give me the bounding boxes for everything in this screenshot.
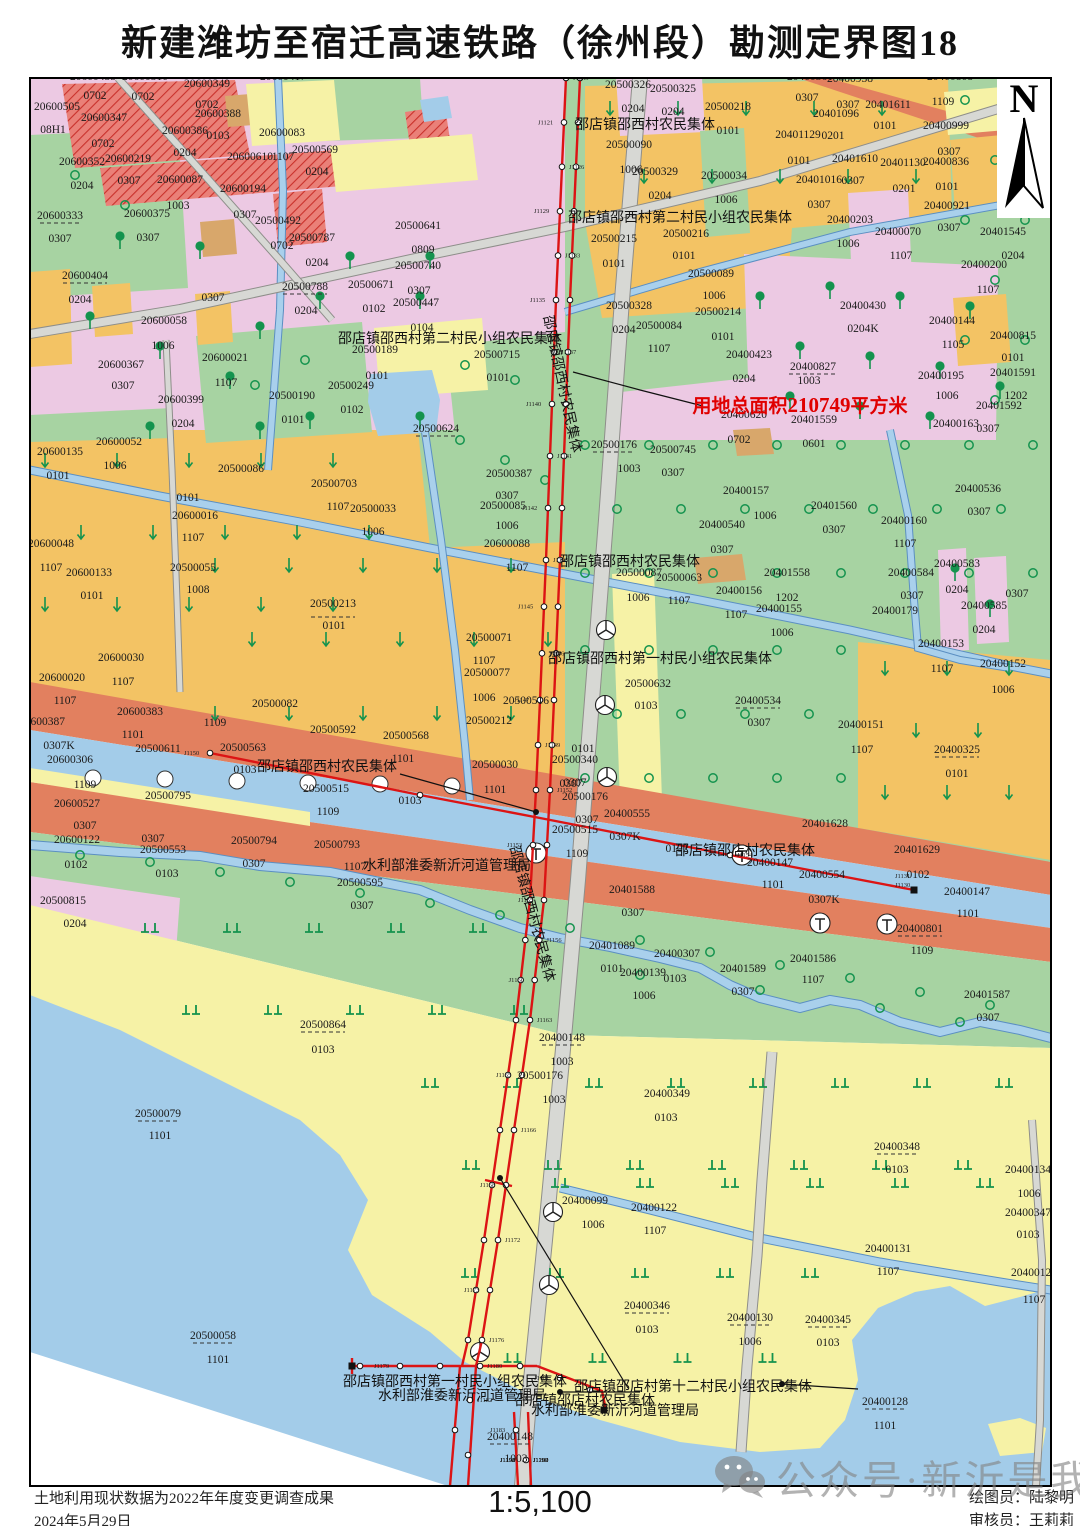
parcel-label: 0102 bbox=[907, 869, 930, 881]
parcel-label: 0204 bbox=[649, 190, 672, 202]
parcel-label: 0103 bbox=[1017, 1229, 1040, 1241]
survey-point-label: J1160 bbox=[509, 977, 524, 984]
parcel-label: 20600030 bbox=[98, 652, 144, 664]
parcel-label: 0103 bbox=[207, 130, 230, 142]
parcel-label: 0204 bbox=[946, 584, 969, 596]
parcel-label: 20600088 bbox=[484, 538, 530, 550]
parcel-label: 20500034 bbox=[701, 170, 747, 182]
parcel-label: 1109 bbox=[911, 945, 934, 957]
parcel-label: 0204 bbox=[613, 324, 636, 336]
parcel-label: 20500085 bbox=[480, 500, 526, 512]
survey-point bbox=[465, 1337, 471, 1343]
parcel-label: 1107 bbox=[802, 974, 825, 986]
survey-point bbox=[535, 742, 541, 748]
parcel-label: 20400836 bbox=[923, 156, 969, 168]
survey-point-label: J1140 bbox=[526, 401, 541, 408]
parcel-label: 0702 bbox=[84, 90, 107, 102]
parcel-label: 0307 bbox=[662, 467, 685, 479]
parcel-label: 1109 bbox=[204, 717, 227, 729]
parcel-label: 20600058 bbox=[141, 315, 187, 327]
parcel-label: 0307 bbox=[202, 292, 225, 304]
parcel-label: 20400585 bbox=[961, 600, 1007, 612]
parcel-label: 0204 bbox=[622, 103, 645, 115]
parcel-label: 0307 bbox=[808, 199, 831, 211]
survey-point bbox=[207, 750, 213, 756]
survey-point bbox=[487, 1287, 493, 1293]
parcel-label: 0204 bbox=[306, 257, 329, 269]
survey-point bbox=[437, 1363, 443, 1369]
parcel-label: 20600194 bbox=[220, 183, 266, 195]
parcel-label: 0307 bbox=[137, 232, 160, 244]
survey-point bbox=[539, 651, 545, 657]
parcel-label: 0307 bbox=[823, 524, 846, 536]
parcel-label: 20400195 bbox=[918, 370, 964, 382]
parcel-label: 20500249 bbox=[328, 380, 374, 392]
survey-point bbox=[545, 505, 551, 511]
village-collective-label: 邵店镇邵西村农民集体 bbox=[560, 553, 700, 570]
parcel-label: 20600404 bbox=[62, 270, 108, 282]
parcel-label: 20400122 bbox=[631, 1202, 677, 1214]
survey-point bbox=[530, 842, 536, 848]
parcel-label: 1006 bbox=[362, 526, 385, 538]
survey-endpoint bbox=[349, 1363, 356, 1370]
parcel-label: 1107 bbox=[40, 562, 63, 574]
parcel-label: 1006 bbox=[473, 692, 496, 704]
survey-point-label: J1280 bbox=[533, 1457, 549, 1464]
parcel-label: 1006 bbox=[633, 990, 656, 1002]
parcel-label: 1107 bbox=[112, 676, 135, 688]
parcel-label: 20500329 bbox=[632, 166, 678, 178]
survey-point-label: J1180 bbox=[487, 1363, 502, 1370]
parcel-label: 0204 bbox=[174, 147, 197, 159]
parcel-label: 20500328 bbox=[606, 300, 652, 312]
parcel-label: 20600399 bbox=[158, 394, 204, 406]
survey-point bbox=[511, 1127, 517, 1133]
parcel-label: 1003 bbox=[618, 463, 641, 475]
parcel-label: 20500218 bbox=[705, 101, 751, 113]
parcel-label: 0307 bbox=[732, 986, 755, 998]
parcel-label: 20400130 bbox=[727, 1312, 773, 1324]
parcel-label: 20500055 bbox=[170, 562, 216, 574]
survey-point-label: J1135 bbox=[530, 297, 545, 304]
parcel-label: 1107 bbox=[668, 595, 691, 607]
survey-point-label: J1163 bbox=[537, 1017, 552, 1024]
parcel-label: 1107 bbox=[894, 538, 917, 550]
survey-point bbox=[465, 1452, 471, 1458]
parcel-label: 0307 bbox=[842, 175, 865, 187]
parcel-label: 20500340 bbox=[552, 754, 598, 766]
parcel-label: 20600087 bbox=[157, 174, 203, 186]
parcel-label: 20600375 bbox=[124, 208, 170, 220]
parcel-label: 20600016 bbox=[172, 510, 218, 522]
parcel-label: 20400128 bbox=[862, 1396, 908, 1408]
parcel-label: 20400348 bbox=[874, 1141, 920, 1153]
parcel-label: 20401591 bbox=[990, 367, 1036, 379]
parcel-label: 1101 bbox=[957, 908, 980, 920]
parcel-label: 20400827 bbox=[790, 361, 836, 373]
parcel-label: 20500553 bbox=[140, 844, 186, 856]
parcel-label: 0201 bbox=[893, 183, 916, 195]
parcel-label: 1006 bbox=[703, 290, 726, 302]
parcel-label: 1107 bbox=[725, 609, 748, 621]
village-collective-label: 邵店镇邵西村第一村民小组农民集体 bbox=[343, 1373, 567, 1390]
parcel-label: 20400921 bbox=[924, 200, 970, 212]
parcel-label: 1109 bbox=[932, 96, 955, 108]
parcel-label: 20400200 bbox=[961, 259, 1007, 271]
parcel-label: 20401586 bbox=[790, 953, 836, 965]
parcel-label: 0204 bbox=[295, 305, 318, 317]
parcel-label: 0101 bbox=[487, 372, 510, 384]
parcel-label: 20400801 bbox=[897, 923, 943, 935]
parcel-label: 0307 bbox=[977, 1012, 1000, 1024]
parcel-label: 20500387 bbox=[486, 468, 532, 480]
survey-point-label: J1133 bbox=[565, 253, 580, 260]
parcel-label: 20600388 bbox=[195, 108, 241, 120]
survey-point bbox=[497, 1127, 503, 1133]
parcel-label: 1006 bbox=[152, 340, 175, 352]
parcel-label: 0101 bbox=[282, 414, 305, 426]
parcel-label: 0204 bbox=[172, 418, 195, 430]
parcel-label: 0101 bbox=[177, 492, 200, 504]
parcel-label: 0103 bbox=[655, 1112, 678, 1124]
survey-point-label: J1172 bbox=[505, 1237, 520, 1244]
survey-point bbox=[553, 297, 559, 303]
parcel-label: 1101 bbox=[484, 784, 507, 796]
parcel-label: 20500795 bbox=[145, 790, 191, 802]
parcel-label: 0101 bbox=[47, 470, 70, 482]
parcel-label: 1006 bbox=[1018, 1188, 1041, 1200]
parcel-label: 0101 bbox=[717, 125, 740, 137]
parcel-label: 20500176 bbox=[517, 1070, 563, 1082]
parcel-label: 20600387 bbox=[19, 716, 65, 728]
parcel-label: 20500447 bbox=[393, 297, 439, 309]
village-collective-label: 邵店镇邵西村农民集体 bbox=[257, 758, 397, 775]
survey-point bbox=[543, 557, 549, 563]
parcel-label: 0702 bbox=[728, 434, 751, 446]
parcel-label: 20500215 bbox=[591, 233, 637, 245]
survey-point bbox=[557, 208, 563, 214]
parcel-label: 20500079 bbox=[135, 1108, 181, 1120]
parcel-label: 1003 bbox=[798, 375, 821, 387]
survey-point bbox=[561, 120, 567, 126]
survey-point bbox=[397, 1363, 403, 1369]
parcel-label: 20400583 bbox=[934, 558, 980, 570]
village-collective-label: 邵店镇邵西村第二村民小组农民集体 bbox=[338, 330, 562, 347]
parcel-label: 20500715 bbox=[474, 349, 520, 361]
parcel-label: 20500492 bbox=[255, 215, 301, 227]
parcel-label: 0103 bbox=[664, 973, 687, 985]
parcel-label: 1109 bbox=[566, 848, 589, 860]
parcel-label: 0204 bbox=[64, 918, 87, 930]
survey-point-label: J1165 bbox=[496, 1072, 511, 1079]
parcel-label: 20600527 bbox=[54, 798, 100, 810]
parcel-label: 1107 bbox=[890, 250, 913, 262]
parcel-label: 0307 bbox=[968, 506, 991, 518]
parcel-label: 0601 bbox=[803, 438, 826, 450]
parcel-label: 20400139 bbox=[620, 967, 666, 979]
parcel-label: 20500745 bbox=[650, 444, 696, 456]
parcel-label: 20500793 bbox=[314, 839, 360, 851]
parcel-label: 0307 bbox=[748, 717, 771, 729]
parcel-label: 20600383 bbox=[117, 706, 163, 718]
village-collective-label: 水利部淮委新沂河道管理局 bbox=[531, 1403, 699, 1419]
parcel-label: 20500592 bbox=[310, 724, 356, 736]
survey-point-label: J1166 bbox=[521, 1127, 537, 1134]
total-area-annotation: 用地总面积210749平方米 bbox=[692, 393, 908, 417]
parcel-label: 20401610 bbox=[832, 153, 878, 165]
parcel-label: 20400584 bbox=[888, 567, 934, 579]
survey-point-label: J1121 bbox=[538, 119, 553, 126]
parcel-label: 0101 bbox=[1002, 352, 1025, 364]
parcel-label: 0307 bbox=[977, 423, 1000, 435]
parcel-label: 20400540 bbox=[699, 519, 745, 531]
parcel-label: 0307K bbox=[609, 831, 641, 843]
parcel-label: 20401130 bbox=[880, 157, 926, 169]
parcel-label: 20400153 bbox=[918, 638, 964, 650]
parcel-label: 0307 bbox=[711, 544, 734, 556]
parcel-label: 1105 bbox=[942, 339, 965, 351]
parcel-label: 0102 bbox=[65, 859, 88, 871]
survey-point bbox=[541, 604, 547, 610]
parcel-label: 20400147 bbox=[944, 886, 990, 898]
survey-point bbox=[551, 697, 557, 703]
parcel-label: 20400134 bbox=[1005, 1164, 1051, 1176]
watermark-text: 公众号·新沂是我家 bbox=[776, 1448, 1080, 1506]
parcel-label: 20401560 bbox=[811, 500, 857, 512]
survey-point-label: J1150 bbox=[184, 750, 199, 757]
parcel-label: 20500671 bbox=[348, 279, 394, 291]
survey-point bbox=[547, 787, 553, 793]
parcel-label: 0204 bbox=[973, 624, 996, 636]
parcel-label: 0102 bbox=[363, 303, 386, 315]
survey-point bbox=[532, 977, 538, 983]
parcel-label: 1006 bbox=[496, 520, 519, 532]
parcel-label: 20400144 bbox=[929, 315, 975, 327]
parcel-label: 20600386 bbox=[162, 125, 208, 137]
parcel-label: 1107 bbox=[506, 562, 529, 574]
parcel-label: 1003 bbox=[543, 1094, 566, 1106]
parcel-label: 0307 bbox=[243, 858, 266, 870]
survey-point bbox=[495, 1237, 501, 1243]
parcel-label: 20401629 bbox=[894, 844, 940, 856]
parcel-label: 1006 bbox=[104, 460, 127, 472]
parcel-label: 1006 bbox=[739, 1336, 762, 1348]
parcel-label: 0702 bbox=[271, 240, 294, 252]
parcel-label: 1107 bbox=[182, 532, 205, 544]
parcel-label: 1101 bbox=[874, 1420, 897, 1432]
parcel-label: 20401129 bbox=[775, 129, 821, 141]
parcel-label: 20500090 bbox=[606, 139, 652, 151]
parcel-label: 1006 bbox=[771, 627, 794, 639]
parcel-label: 20500216 bbox=[663, 228, 709, 240]
parcel-label: 1101 bbox=[149, 1130, 172, 1142]
parcel-label: 20400815 bbox=[990, 330, 1036, 342]
north-letter: N bbox=[1010, 76, 1039, 121]
survey-point bbox=[544, 842, 550, 848]
parcel-label: 1107 bbox=[272, 151, 295, 163]
village-collective-label: 邵店镇邵西村农民集体 bbox=[575, 116, 715, 133]
parcel-label: 20500030 bbox=[472, 759, 518, 771]
parcel-label: 0101 bbox=[603, 258, 626, 270]
watermark: 公众号·新沂是我家 bbox=[714, 1448, 1080, 1506]
parcel-label: 20401558 bbox=[764, 567, 810, 579]
parcel-label: 20500794 bbox=[231, 835, 277, 847]
parcel-label: 0204K bbox=[847, 323, 879, 335]
parcel-label: 20500089 bbox=[688, 268, 734, 280]
parcel-label: 20500740 bbox=[395, 260, 441, 272]
parcel-label: 0204 bbox=[662, 106, 685, 118]
parcel-label: 0103 bbox=[234, 764, 257, 776]
parcel-label: 0307 bbox=[560, 778, 583, 790]
parcel-label: 20400160 bbox=[881, 515, 927, 527]
parcel-polygon bbox=[420, 96, 452, 122]
parcel-label: 20401592 bbox=[976, 400, 1022, 412]
parcel-label: 20400307 bbox=[654, 948, 700, 960]
bridge-symbol bbox=[444, 778, 460, 794]
parcel-label: 20400349 bbox=[644, 1088, 690, 1100]
parcel-label: 0307 bbox=[408, 285, 431, 297]
parcel-label: 20400148 bbox=[539, 1032, 585, 1044]
parcel-label: 20400157 bbox=[723, 485, 769, 497]
parcel-label: 20400536 bbox=[955, 483, 1001, 495]
parcel-label: 20600048 bbox=[28, 538, 74, 550]
parcel-label: 20401545 bbox=[980, 226, 1026, 238]
parcel-label: 1107 bbox=[877, 1266, 900, 1278]
parcel-label: 20500595 bbox=[337, 877, 383, 889]
parcel-label: 08H1 bbox=[40, 124, 66, 136]
survey-point bbox=[452, 1427, 458, 1433]
survey-endpoint bbox=[911, 887, 918, 894]
parcel-label: 20400156 bbox=[716, 585, 762, 597]
parcel-label: 20500082 bbox=[252, 698, 298, 710]
parcel-label: 20500568 bbox=[383, 730, 429, 742]
parcel-label: 0103 bbox=[886, 1164, 909, 1176]
parcel-label: 1107 bbox=[215, 377, 238, 389]
parcel-label: 20600133 bbox=[66, 567, 112, 579]
parcel-label: 20500063 bbox=[656, 572, 702, 584]
village-collective-label: 邵店镇邵西村第一村民小组农民集体 bbox=[548, 650, 772, 667]
parcel-label: 20500515 bbox=[303, 783, 349, 795]
parcel-label: 20600349 bbox=[184, 78, 230, 90]
survey-point bbox=[549, 401, 555, 407]
survey-point-label: J1176 bbox=[489, 1337, 505, 1344]
parcel-label: 20600306 bbox=[47, 754, 93, 766]
parcel-label: 0101 bbox=[673, 250, 696, 262]
parcel-label: 20500864 bbox=[300, 1019, 346, 1031]
parcel-label: 0103 bbox=[635, 700, 658, 712]
parcel-label: 0307 bbox=[351, 900, 374, 912]
parcel-label: 1008 bbox=[187, 584, 210, 596]
parcel-label: 20500213 bbox=[310, 598, 356, 610]
survey-point-label: J1145 bbox=[518, 604, 533, 611]
parcel-label: 20600052 bbox=[96, 436, 142, 448]
parcel-label: 20500611 bbox=[135, 743, 181, 755]
survey-point bbox=[533, 787, 539, 793]
parcel-label: 0307K bbox=[808, 894, 840, 906]
survey-point bbox=[479, 1337, 485, 1343]
parcel-label: 20400325 bbox=[934, 744, 980, 756]
parcel-label: 20400163 bbox=[933, 418, 979, 430]
survey-point bbox=[523, 937, 529, 943]
survey-point-label: J1156 bbox=[546, 937, 562, 944]
parcel-label: 1107 bbox=[648, 343, 671, 355]
parcel-label: 1006 bbox=[992, 684, 1015, 696]
parcel-label: 0101 bbox=[712, 331, 735, 343]
parcel-label: 20400423 bbox=[726, 349, 772, 361]
survey-point-label: J1168 bbox=[480, 1182, 495, 1189]
parcel-label: 0102 bbox=[341, 404, 364, 416]
survey-point bbox=[527, 1017, 533, 1023]
parcel-label: 0702 bbox=[132, 91, 155, 103]
parcel-label: 20400347 bbox=[1005, 1207, 1051, 1219]
parcel-label: 20500641 bbox=[395, 220, 441, 232]
parcel-label: 20400534 bbox=[735, 695, 781, 707]
parcel-label: 20600083 bbox=[259, 127, 305, 139]
parcel-label: 0307 bbox=[118, 175, 141, 187]
parcel-polygon bbox=[30, 269, 72, 367]
parcel-label: 20400346 bbox=[624, 1300, 670, 1312]
map-layers: J1045J1121J1126J1129J1133J1135J1137J1140… bbox=[19, 71, 1057, 1486]
bridge-symbol bbox=[372, 776, 388, 792]
parcel-label: 20401016 bbox=[796, 174, 842, 186]
parcel-label: 0103 bbox=[156, 868, 179, 880]
bridge-symbol bbox=[157, 771, 173, 787]
survey-point-label: J1129 bbox=[534, 208, 549, 215]
survey-point bbox=[541, 897, 547, 903]
parcel-label: 0307 bbox=[112, 380, 135, 392]
parcel-label: 0307 bbox=[74, 820, 97, 832]
parcel-label: 0201 bbox=[822, 130, 845, 142]
parcel-label: 20400070 bbox=[875, 226, 921, 238]
parcel-label: 1107 bbox=[54, 695, 77, 707]
parcel-label: 1006 bbox=[715, 194, 738, 206]
parcel-label: 1107 bbox=[473, 655, 496, 667]
parcel-label: 0307 bbox=[49, 233, 72, 245]
parcel-label: 20500703 bbox=[311, 478, 357, 490]
survey-point bbox=[555, 604, 561, 610]
parcel-label: 1107 bbox=[851, 744, 874, 756]
parcel-label: 0101 bbox=[874, 120, 897, 132]
parcel-label: 0103 bbox=[312, 1044, 335, 1056]
survey-point bbox=[555, 253, 561, 259]
parcel-label: 20500071 bbox=[466, 632, 512, 644]
parcel-label: 1006 bbox=[627, 592, 650, 604]
parcel-label: 20401628 bbox=[802, 818, 848, 830]
north-arrow: N bbox=[997, 76, 1051, 218]
parcel-label: 1107 bbox=[644, 1225, 667, 1237]
parcel-polygon bbox=[92, 283, 133, 337]
parcel-label: 0307K bbox=[43, 740, 75, 752]
village-collective-label: 邵店镇邵店村农民集体 bbox=[675, 842, 815, 859]
survey-point-label: J1126 bbox=[569, 164, 585, 171]
parcel-label: 20401089 bbox=[589, 940, 635, 952]
survey-point bbox=[567, 297, 573, 303]
survey-map-page: 新建潍坊至宿迁高速铁路（徐州段）勘测定界图18 J1045J1121J1126J… bbox=[0, 0, 1080, 1526]
village-collective-label: 水利部淮委新沂河道管理局 bbox=[363, 858, 531, 874]
parcel-label: 20600122 bbox=[54, 834, 100, 846]
village-collective-label: 邵店镇邵西村第二村民小组农民集体 bbox=[568, 209, 792, 226]
survey-point-label: J1130 bbox=[895, 882, 910, 889]
parcel-label: 0101 bbox=[788, 155, 811, 167]
parcel-label: 20400179 bbox=[872, 605, 918, 617]
parcel-label: 1107 bbox=[977, 284, 1000, 296]
reviewer: 审核员：王莉莉 bbox=[969, 1510, 1074, 1526]
parcel-label: 0101 bbox=[323, 620, 346, 632]
survey-point-label: J1179 bbox=[374, 1363, 389, 1370]
survey-point bbox=[559, 164, 565, 170]
parcel-label: 20500058 bbox=[190, 1330, 236, 1342]
parcel-label: 20600219 bbox=[105, 153, 151, 165]
